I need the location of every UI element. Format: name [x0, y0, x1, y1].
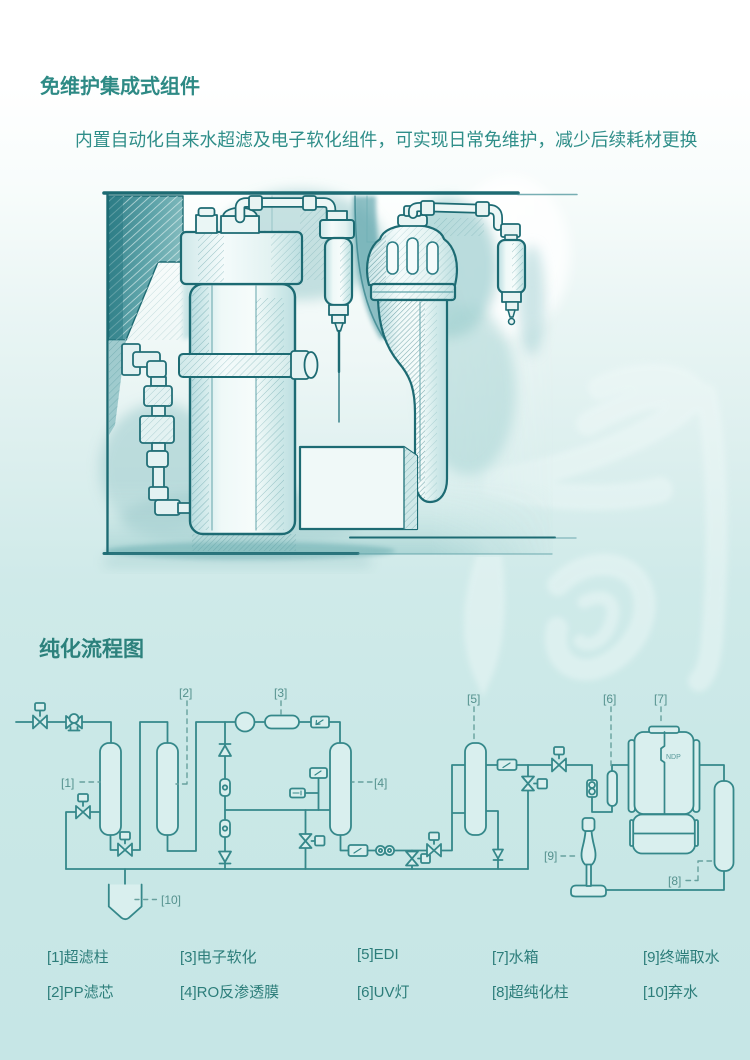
svg-text:[7]: [7] — [654, 692, 667, 706]
svg-text:[3]: [3] — [274, 686, 287, 700]
svg-text:[1]: [1] — [61, 776, 74, 790]
svg-text:[6]: [6] — [603, 692, 616, 706]
svg-text:[2]: [2] — [179, 686, 192, 700]
svg-text:NDP: NDP — [666, 754, 681, 761]
svg-text:[9]: [9] — [544, 849, 557, 863]
svg-text:[5]: [5] — [467, 692, 480, 706]
svg-text:[10]: [10] — [161, 893, 181, 907]
svg-text:[8]: [8] — [668, 874, 681, 888]
svg-text:[4]: [4] — [374, 776, 387, 790]
